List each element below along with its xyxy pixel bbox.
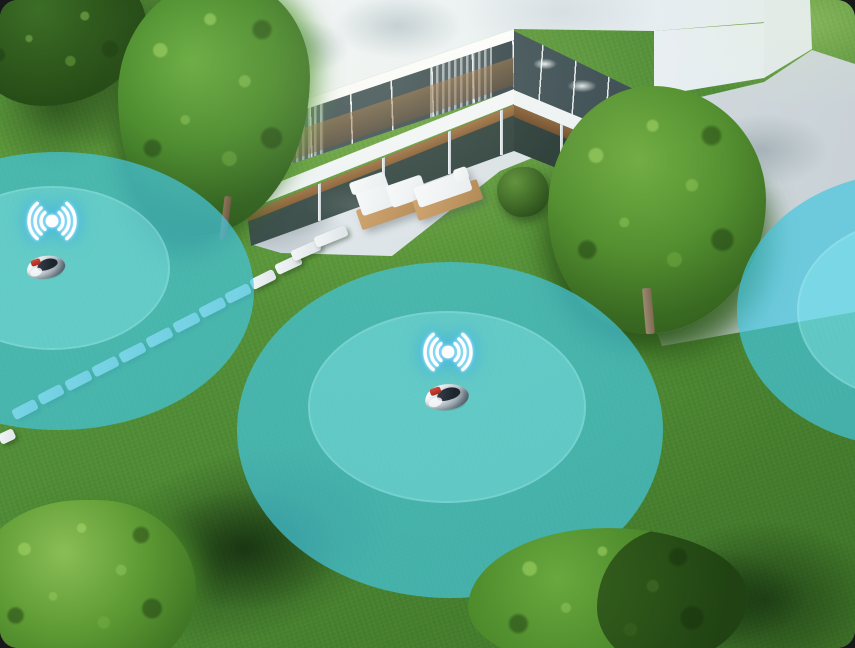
signal-icon-left (20, 197, 84, 245)
garden-scene (0, 0, 855, 648)
signal-dot (46, 215, 59, 228)
signal-dot (442, 346, 455, 359)
signal-icon-middle (416, 328, 480, 376)
signal-icons (0, 0, 855, 648)
